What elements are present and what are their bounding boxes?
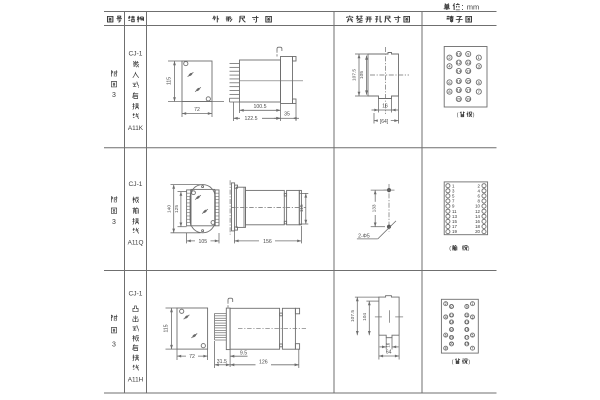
svg-text:): ) <box>468 359 470 365</box>
svg-text:(: ( <box>452 359 454 365</box>
svg-text:13: 13 <box>465 320 469 324</box>
svg-text:156: 156 <box>263 239 272 245</box>
svg-text:20: 20 <box>475 229 480 234</box>
svg-text:19: 19 <box>465 342 469 346</box>
svg-text:9: 9 <box>466 305 468 309</box>
svg-text:105: 105 <box>359 71 365 79</box>
svg-text:72: 72 <box>189 354 195 360</box>
svg-text:10: 10 <box>457 52 462 57</box>
svg-text:3: 3 <box>112 219 116 226</box>
svg-text:19: 19 <box>466 97 471 102</box>
svg-text:1: 1 <box>472 302 474 306</box>
svg-text:18: 18 <box>450 336 454 340</box>
svg-text:17: 17 <box>465 336 469 340</box>
svg-text:10: 10 <box>450 305 454 309</box>
svg-text:2: 2 <box>445 302 447 306</box>
svg-text:16: 16 <box>382 103 388 109</box>
svg-text:15: 15 <box>465 328 469 332</box>
svg-text:35: 35 <box>284 112 290 118</box>
svg-text:[64]: [64] <box>380 119 389 125</box>
svg-text:CJ-1: CJ-1 <box>129 51 143 58</box>
svg-text:20: 20 <box>450 342 454 346</box>
svg-text:122.5: 122.5 <box>245 116 258 122</box>
svg-text:72: 72 <box>194 107 200 113</box>
svg-text:16: 16 <box>450 328 454 332</box>
svg-text:18: 18 <box>457 88 462 93</box>
svg-text:15: 15 <box>466 79 471 84</box>
svg-text:3: 3 <box>112 341 116 348</box>
svg-text:A11Q: A11Q <box>128 240 144 247</box>
svg-text:CJ-1: CJ-1 <box>129 181 143 188</box>
svg-text:(: ( <box>449 246 451 252</box>
svg-text:115: 115 <box>164 324 170 332</box>
svg-text:115: 115 <box>167 77 173 85</box>
svg-text:17: 17 <box>466 88 471 93</box>
svg-text:7: 7 <box>472 347 474 351</box>
svg-text:3: 3 <box>112 92 116 99</box>
svg-text:31.5: 31.5 <box>217 359 227 365</box>
svg-text:(: ( <box>457 113 459 119</box>
svg-text:105: 105 <box>198 239 207 245</box>
svg-text:11: 11 <box>465 313 469 317</box>
svg-text:6: 6 <box>445 333 447 337</box>
svg-text:5: 5 <box>472 333 474 337</box>
svg-text:140: 140 <box>167 205 173 213</box>
svg-text:64: 64 <box>386 350 392 356</box>
svg-text:115: 115 <box>299 204 305 212</box>
svg-text:14: 14 <box>457 69 462 74</box>
svg-text:13: 13 <box>466 69 471 74</box>
svg-text:16: 16 <box>385 342 390 347</box>
svg-text:3: 3 <box>472 315 474 319</box>
svg-text:133: 133 <box>371 204 377 212</box>
svg-text:12: 12 <box>457 60 462 65</box>
svg-text:126: 126 <box>259 360 268 366</box>
svg-text:16: 16 <box>457 79 462 84</box>
svg-text:): ) <box>468 246 470 252</box>
svg-text:2-Φ5: 2-Φ5 <box>358 233 370 239</box>
svg-text:107.5: 107.5 <box>351 69 357 81</box>
svg-text:4: 4 <box>445 315 447 319</box>
svg-text:mm: mm <box>467 3 480 12</box>
svg-text:125: 125 <box>174 205 180 213</box>
svg-text:107.5: 107.5 <box>350 310 356 322</box>
svg-text:9.5: 9.5 <box>240 351 247 357</box>
svg-text:104: 104 <box>362 313 368 321</box>
svg-text:19: 19 <box>452 229 457 234</box>
svg-text:20: 20 <box>457 97 462 102</box>
svg-text:): ) <box>473 113 475 119</box>
svg-text:A11H: A11H <box>128 376 144 383</box>
svg-text:A11K: A11K <box>128 125 144 132</box>
svg-text:14: 14 <box>450 320 454 324</box>
svg-text:12: 12 <box>450 313 454 317</box>
svg-text:CJ-1: CJ-1 <box>129 290 143 297</box>
svg-text:8: 8 <box>445 347 447 351</box>
svg-text:100.5: 100.5 <box>254 104 267 110</box>
